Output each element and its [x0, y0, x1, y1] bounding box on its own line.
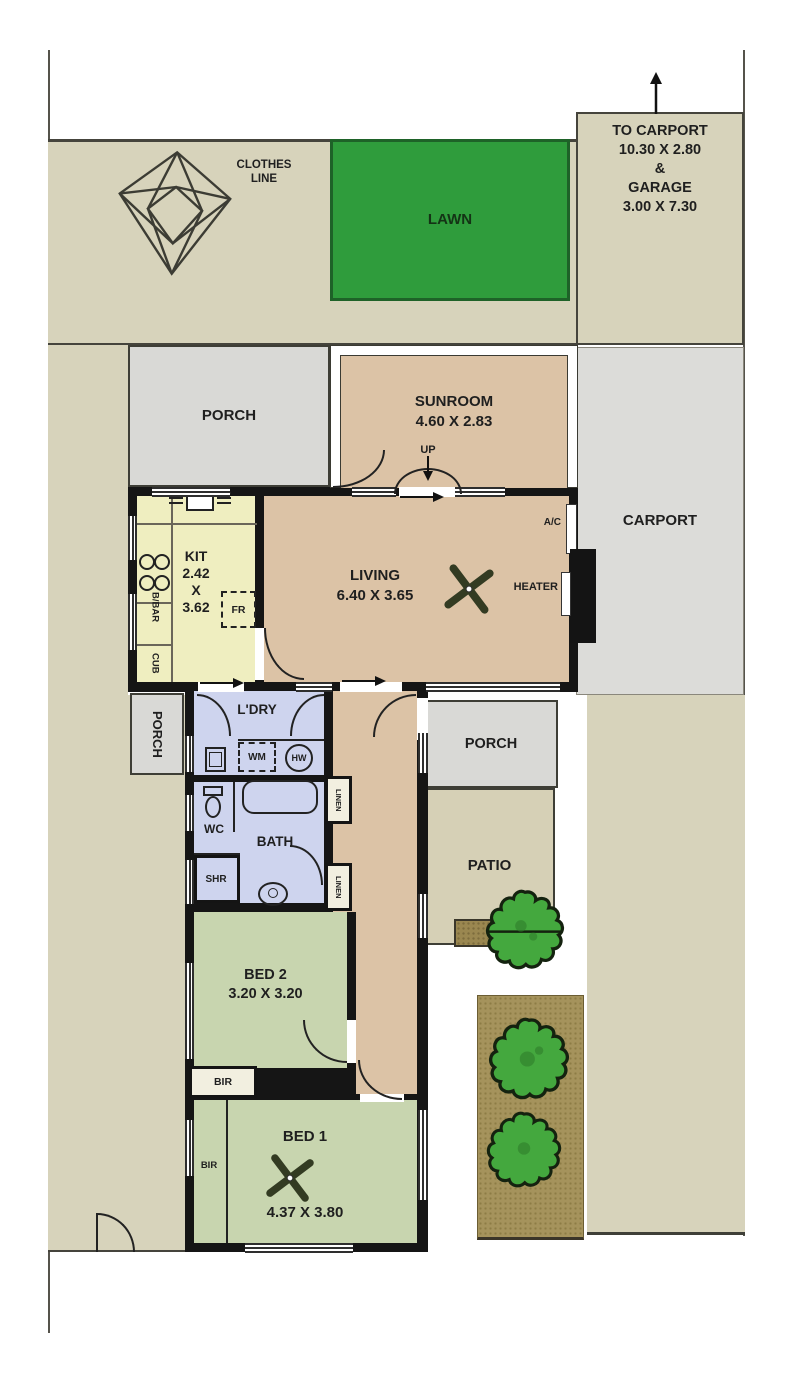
laundry-left-window	[185, 736, 194, 772]
patio-tree-icon	[484, 888, 566, 972]
breakfast-bar-label: B/BAR	[138, 566, 171, 648]
toilet-bowl	[205, 796, 221, 818]
bath-left-window	[185, 860, 194, 904]
opening-bed2	[347, 1020, 356, 1063]
garden-tree-icon-1	[487, 1016, 571, 1102]
porch-top-area: PORCH	[128, 345, 330, 487]
heater-unit	[570, 549, 596, 643]
ceiling-fan-icon	[436, 556, 502, 622]
hot-water-label: HW	[292, 753, 307, 763]
toilet-cistern	[203, 786, 223, 796]
entry-window-right	[455, 487, 505, 497]
heater-label: HEATER	[494, 581, 558, 595]
kitchen-counter-top-line	[137, 523, 257, 525]
laundry-bench-line	[238, 739, 324, 741]
linen-closet-1: LINEN	[325, 776, 352, 824]
sunroom-label: SUNROOM 4.60 X 2.83	[364, 392, 544, 432]
up-step-arrow-icon	[420, 456, 436, 482]
porch-left-area: PORCH	[130, 693, 184, 775]
ac-label: A/C	[525, 517, 561, 530]
front-yard-strip	[48, 695, 185, 1252]
heater-panel	[561, 572, 571, 616]
carport-label: CARPORT	[623, 512, 697, 531]
washing-machine-box: WM	[238, 742, 276, 772]
entry-window-left	[352, 487, 396, 497]
entry-arrow-icon	[400, 490, 444, 504]
bed1-bottom-window	[245, 1243, 353, 1253]
clothes-line-icon	[115, 148, 235, 278]
patio-label: PATIO	[468, 857, 512, 876]
living-label: LIVING 6.40 X 3.65	[300, 566, 450, 606]
bed1-ceiling-fan-icon	[258, 1146, 321, 1209]
to-carport-box: TO CARPORT 10.30 X 2.80 & GARAGE 3.00 X …	[576, 112, 744, 345]
laundry-label: L'DRY	[222, 702, 292, 719]
porch-mid-label: PORCH	[465, 735, 517, 753]
north-arrow-icon	[648, 72, 664, 114]
living-bottom-window-small	[296, 682, 332, 692]
garden-tree-icon-2	[485, 1110, 563, 1190]
bir-closet: BIR	[189, 1066, 257, 1098]
laundry-trough-basin	[209, 752, 222, 767]
hot-water-unit: HW	[285, 744, 313, 772]
linen-closet-2: LINEN	[325, 863, 352, 911]
bed2-left-window	[185, 963, 194, 1059]
carport-area: CARPORT	[576, 347, 744, 695]
basin-drain	[268, 888, 278, 898]
lawn-area: LAWN	[330, 139, 570, 301]
bed1-east-window	[418, 1110, 428, 1200]
gate-hinge-line	[96, 1213, 98, 1252]
bed1-name-label: BED 1	[245, 1128, 365, 1147]
bed1-left-window	[185, 1120, 194, 1176]
bed1-bir-line	[226, 1100, 228, 1243]
shower-label: SHR	[196, 874, 236, 887]
lawn-label: LAWN	[428, 211, 472, 230]
wc-left-window	[185, 795, 194, 831]
cupboard-label: CUB	[138, 644, 171, 682]
opening-kitchen-living	[255, 628, 264, 680]
side-yard-strip	[48, 345, 128, 695]
wc-label: WC	[194, 822, 234, 837]
bed2-label: BED 2 3.20 X 3.20	[198, 966, 333, 1004]
bed1-bir-label: BIR	[192, 1160, 226, 1172]
bed1-dims-label: 4.37 X 3.80	[235, 1204, 375, 1223]
ac-unit	[566, 504, 577, 554]
hall-east-window-1	[418, 733, 428, 773]
porch-left-label: PORCH	[149, 711, 165, 758]
hall-east-window-2	[418, 894, 428, 938]
living-bottom-window-long	[426, 682, 560, 692]
porch-top-label: PORCH	[202, 407, 256, 426]
kitchen-left-window-2	[128, 594, 137, 650]
kitchen-laundry-arrow-icon	[200, 676, 244, 690]
to-carport-label: TO CARPORT 10.30 X 2.80 & GARAGE 3.00 X …	[578, 122, 742, 217]
fridge-box: FR	[221, 591, 256, 628]
bathtub	[242, 780, 318, 814]
clothes-line-label: CLOTHES LINE	[218, 158, 310, 186]
kitchen-top-window	[152, 487, 230, 497]
floor-plan: TO CARPORT 10.30 X 2.80 & GARAGE 3.00 X …	[0, 0, 800, 1384]
living-hall-arrow-icon	[342, 674, 386, 688]
porch-mid-area: PORCH	[424, 700, 558, 788]
kitchen-left-window-1	[128, 516, 137, 560]
